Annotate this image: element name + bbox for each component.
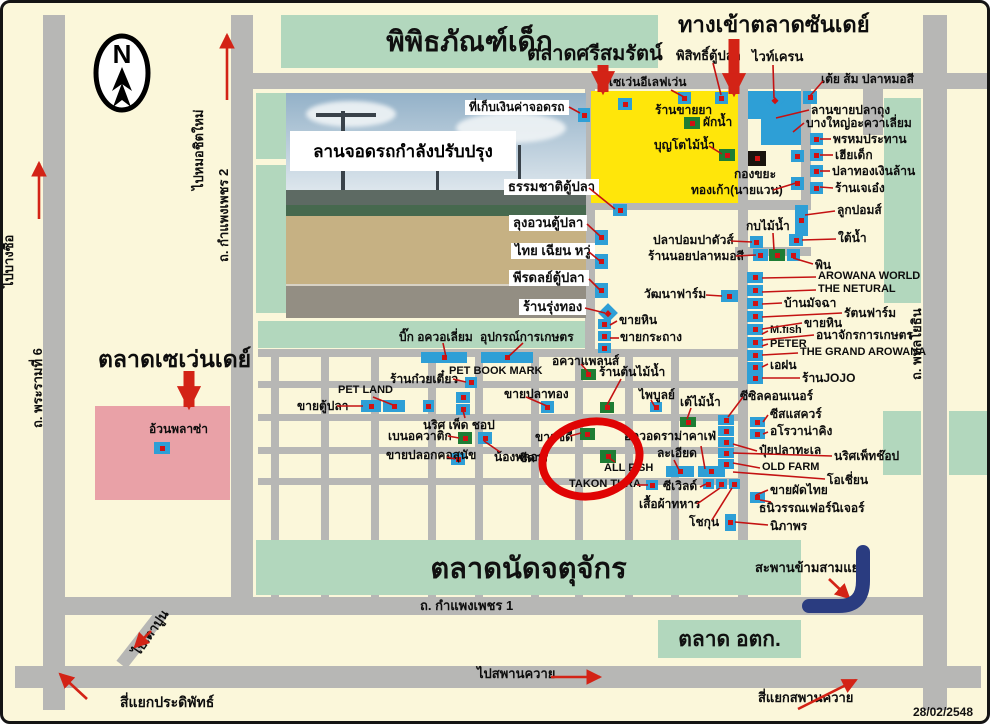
- shop-label: พิสิทธิ์ตู้ปลา: [676, 49, 741, 63]
- map-box: [747, 285, 763, 296]
- box-marker-dot: [719, 482, 724, 487]
- map-box: [748, 151, 766, 166]
- shop-label: ธนิวรรณเฟอร์นิเจอร์: [759, 502, 865, 515]
- road: [231, 15, 253, 615]
- shop-label: PET BOOK MARK: [449, 366, 543, 378]
- map-box: [810, 149, 823, 161]
- shop-label: ซีสแสควร์: [770, 408, 822, 421]
- box-marker-dot: [369, 404, 374, 409]
- shop-label: ทองเก้า(นายแวน): [691, 184, 783, 197]
- shop-label-boxed: ร้านรุ่งทอง: [519, 299, 586, 315]
- map-box: [789, 234, 803, 246]
- area-blue-block-bottom: [761, 117, 801, 145]
- map-box: [600, 402, 614, 413]
- map-box: [703, 479, 714, 489]
- shop-label: อ้วนพลาซ่า: [149, 423, 208, 436]
- shop-label: ALL FISH: [604, 463, 653, 475]
- box-marker-dot: [599, 235, 604, 240]
- box-marker-dot: [753, 275, 758, 280]
- area-otk-market: ตลาด อตก.: [658, 620, 801, 658]
- area-otk-market-label: ตลาด อตก.: [678, 623, 781, 656]
- area-chatuchak-market: ตลาดนัดจตุจักร: [256, 540, 801, 595]
- shop-label: เต้ไม้น้ำ: [680, 396, 721, 409]
- box-marker-dot: [686, 420, 691, 425]
- photo-caption: ลานจอดรถกำลังปรับปรุง: [290, 131, 516, 171]
- map-box: [718, 448, 734, 458]
- map-box: [595, 230, 608, 245]
- shop-label: ซีซิลคอนเนอร์: [740, 390, 813, 403]
- shop-label: OLD FARM: [762, 462, 819, 474]
- shop-label: ร้านนอยปลาหมอสี: [648, 250, 744, 263]
- map-box: [791, 150, 804, 162]
- shop-label: เฮียเด็ก: [835, 149, 873, 162]
- shop-label: โชกุน: [689, 516, 719, 529]
- map-box: [750, 417, 765, 427]
- map-box: [458, 432, 472, 444]
- box-marker-dot: [706, 482, 711, 487]
- shop-label: ปลาปอมปาดัวส์: [653, 234, 734, 247]
- shop-label: ขายตู้ปลา: [297, 400, 348, 413]
- map-box: [456, 392, 470, 403]
- shop-label: ร้านเจเอ๋ง: [835, 182, 885, 195]
- map-box: [795, 205, 808, 236]
- shop-label: เต้ย ส้ม ปลาหมอสี: [821, 73, 914, 86]
- box-marker-dot: [775, 253, 780, 258]
- map-box: [715, 92, 728, 104]
- box-marker-dot: [469, 380, 474, 385]
- shop-label: บิ๊ก อควอเลี่ยม: [399, 331, 473, 344]
- map-box: [716, 479, 727, 489]
- place-title: ทางเข้าตลาดซันเดย์: [678, 13, 870, 36]
- box-marker-dot: [753, 288, 758, 293]
- shop-label: สี่แยกประดิพัทธ์: [120, 695, 214, 710]
- map-box: [646, 480, 658, 490]
- shop-label: โอเชี่ยน: [827, 474, 868, 487]
- shop-label-boxed: พีรดลย์ตู้ปลา: [509, 270, 589, 286]
- map-box: [810, 133, 823, 145]
- shop-label: พรหมประทาน: [833, 133, 907, 146]
- box-marker-dot: [678, 469, 683, 474]
- box-marker-dot: [753, 353, 758, 358]
- box-marker-dot: [599, 259, 604, 264]
- shop-label: ถ. กำแพงเพชร 1: [420, 599, 513, 613]
- road-label: ถ. พหลโยธิน: [906, 308, 927, 380]
- box-marker-dot: [728, 520, 733, 525]
- map-box: [598, 319, 611, 329]
- box-marker-dot: [755, 156, 760, 161]
- shop-label: ไวท์เครน: [752, 50, 803, 64]
- map-box: [456, 404, 470, 415]
- box-marker-dot: [545, 405, 550, 410]
- map-box: [618, 98, 632, 110]
- shop-label: ขายซีดี: [535, 431, 573, 444]
- connector-line: [762, 277, 816, 278]
- map-box: [769, 249, 785, 261]
- map-box: [361, 400, 381, 412]
- map-box: [595, 254, 608, 269]
- box-marker-dot: [753, 365, 758, 370]
- shop-label: อุปกรณ์การเกษตร: [480, 331, 574, 344]
- map-box: [747, 324, 763, 335]
- shop-label: บางใหญ่อะควาเลี่ยม: [806, 117, 912, 130]
- box-marker-dot: [753, 314, 758, 319]
- shop-label-boxed: ธรรมชาติตู้ปลา: [504, 179, 599, 195]
- map-box: [421, 352, 467, 363]
- shop-label: เอฝน: [770, 359, 797, 372]
- map-box: [595, 283, 608, 298]
- box-marker-dot: [719, 96, 724, 101]
- box-marker-dot: [725, 153, 730, 158]
- map-box: [598, 343, 611, 353]
- connector-line: [610, 321, 617, 325]
- box-marker-dot: [791, 253, 796, 258]
- shop-label: ขายผัดไทย: [770, 484, 828, 497]
- shop-label: ขายกระถาง: [620, 331, 682, 344]
- shop-label: เสื้อผ้าทหาร: [639, 498, 700, 511]
- area-block-right-bottom-1: [883, 411, 921, 475]
- map-box: [810, 165, 823, 177]
- box-marker-dot: [160, 446, 165, 451]
- shop-label: รัตนฟาร์ม: [844, 307, 896, 320]
- shop-label-boxed: ไทย เฉียน หวู่: [511, 243, 595, 259]
- box-marker-dot: [461, 407, 466, 412]
- map-box: [753, 249, 768, 261]
- shop-label: ปุ๋ยปลาทะเล: [759, 444, 821, 457]
- map-box: [787, 249, 800, 261]
- map-box: [481, 352, 533, 363]
- map-box: [423, 400, 434, 412]
- box-marker-dot: [753, 301, 758, 306]
- map-box: [750, 429, 765, 439]
- shop-label: อควอดราม่าคาเฟ่: [624, 430, 716, 443]
- box-marker-dot: [426, 404, 431, 409]
- box-marker-dot: [755, 432, 760, 437]
- shop-label: AROWANA WORLD: [818, 271, 920, 283]
- box-marker-dot: [582, 113, 587, 118]
- map-box: [718, 415, 734, 425]
- connector-line: [706, 295, 722, 296]
- box-marker-dot: [605, 405, 610, 410]
- map-box: [721, 290, 738, 302]
- map-box: [747, 350, 763, 361]
- connector-line: [802, 239, 836, 240]
- map-box: [613, 204, 627, 216]
- shop-label-boxed: ลุงอวนตู้ปลา: [509, 215, 587, 231]
- shop-label: ขายปลาทอง: [504, 388, 569, 401]
- box-marker-dot: [654, 405, 659, 410]
- shop-label: ไพบูลย์: [639, 389, 675, 402]
- shop-label: อนาจักรการเกษตร: [816, 329, 913, 342]
- box-marker-dot: [586, 372, 591, 377]
- shop-label: ผักน้ำ: [703, 116, 732, 129]
- road-label: ไปหมอชิตใหม่: [188, 110, 209, 191]
- map-box: [578, 108, 590, 122]
- shop-label: TAKON TURA: [569, 479, 641, 491]
- box-marker-dot: [650, 483, 655, 488]
- map-box: [580, 428, 595, 440]
- box-marker-dot: [814, 169, 819, 174]
- map-box: [750, 236, 763, 248]
- shop-label: สี่แยกสพานควาย: [758, 691, 853, 705]
- compass: N: [93, 33, 151, 113]
- shop-label: PET LAND: [338, 385, 393, 397]
- map-box: [719, 149, 735, 161]
- map-box: [718, 459, 734, 469]
- place-title: ตลาดเซเว่นเดย์: [98, 347, 251, 371]
- shop-label: เซเว่นอีเลฟเว่น: [609, 76, 687, 89]
- shop-label: นริศเพ็ทช๊อป: [834, 450, 899, 463]
- shop-label: สะพานข้ามสามแยก: [755, 561, 867, 575]
- shop-label: ลูกปอมส์: [837, 204, 882, 217]
- box-marker-dot: [755, 420, 760, 425]
- map-box: [465, 377, 477, 388]
- map-box: [598, 331, 611, 341]
- map-box: [725, 514, 736, 531]
- area-strip-left-1: [256, 93, 286, 159]
- box-marker-dot: [732, 482, 737, 487]
- box-marker-dot: [814, 153, 819, 158]
- map-box: [747, 272, 763, 283]
- shop-label: กองขยะ: [734, 168, 776, 181]
- map-box: [747, 337, 763, 348]
- map-box: [747, 298, 763, 309]
- map-box: [666, 466, 694, 477]
- connector-line: [697, 488, 720, 504]
- shop-label: THE NETURAL: [818, 284, 896, 296]
- box-marker-dot: [724, 462, 729, 467]
- map-box: [810, 182, 823, 194]
- shop-label: ขายหิน: [619, 314, 657, 327]
- shop-label: เบนอควาติก: [388, 430, 452, 443]
- box-marker-dot: [724, 451, 729, 456]
- box-marker-dot: [814, 186, 819, 191]
- box-marker-dot: [604, 309, 611, 316]
- box-marker-dot: [483, 436, 488, 441]
- map-root: ลานจอดรถกำลังปรับปรุง N 28/02/2548 พิพิธ…: [3, 3, 987, 721]
- shop-label: ร้านต้นไม้น้ำ: [599, 366, 665, 379]
- box-marker-dot: [602, 322, 607, 327]
- box-marker-dot: [618, 208, 623, 213]
- box-marker-dot: [461, 395, 466, 400]
- box-marker-dot: [799, 218, 804, 223]
- shop-label: กบไม้น้ำ: [746, 220, 790, 233]
- box-marker-dot: [753, 327, 758, 332]
- box-marker-dot: [753, 340, 758, 345]
- map-box: [650, 402, 662, 412]
- shop-label: นิภาพร: [770, 520, 807, 533]
- map-box: [718, 437, 734, 447]
- shop-label: ร้านก๋วยเตี๋ยว: [390, 373, 458, 386]
- direction-arrow: [829, 579, 849, 598]
- box-marker-dot: [505, 355, 510, 360]
- box-marker-dot: [814, 137, 819, 142]
- box-marker-dot: [392, 404, 397, 409]
- map-frame: ลานจอดรถกำลังปรับปรุง N 28/02/2548 พิพิธ…: [0, 0, 990, 724]
- photo-crane-jib: [316, 113, 376, 117]
- box-marker-dot: [606, 454, 611, 459]
- date-stamp: 28/02/2548: [913, 705, 973, 719]
- shop-label: บ้านมัจฉา: [784, 297, 836, 310]
- area-block-right-bottom-2: [949, 411, 990, 475]
- map-box: [747, 311, 763, 322]
- box-marker-dot: [682, 96, 687, 101]
- box-marker-dot: [585, 432, 590, 437]
- box-marker-dot: [724, 440, 729, 445]
- box-marker-dot: [599, 288, 604, 293]
- box-marker-dot: [623, 102, 628, 107]
- box-marker-dot: [795, 181, 800, 186]
- shop-label: ขายปลอกคอสุนัข: [386, 449, 476, 462]
- map-box: [747, 373, 763, 384]
- road-label: ไปบางซื่อ: [0, 235, 19, 288]
- shop-label: ซีดาร์: [519, 452, 548, 465]
- map-box: [684, 117, 700, 129]
- box-marker-dot: [602, 334, 607, 339]
- box-marker-dot: [724, 418, 729, 423]
- box-marker-dot: [808, 95, 813, 100]
- shop-label-boxed: ที่เก็บเงินค่าจอดรถ: [465, 100, 569, 115]
- box-marker-dot: [690, 121, 695, 126]
- box-marker-dot: [463, 436, 468, 441]
- shop-label: ปลาทองเงินล้าน: [832, 165, 915, 178]
- shop-label: อโรวาน่าคิง: [770, 425, 832, 438]
- compass-letter: N: [93, 39, 151, 70]
- shop-label: บุญโตไม้น้ำ: [654, 139, 715, 152]
- box-marker-dot: [602, 346, 607, 351]
- road-label: ถ. กำแพงเพชร 2: [213, 169, 234, 262]
- shop-label: M.fish: [770, 325, 802, 337]
- area-chatuchak-market-label: ตลาดนัดจตุจักร: [430, 545, 626, 591]
- map-box: [729, 479, 740, 489]
- map-box: [581, 369, 596, 380]
- map-box: [383, 400, 405, 412]
- box-marker-dot: [771, 96, 778, 103]
- shop-label: ซีเวิลด์: [663, 480, 697, 493]
- connector-line: [805, 211, 835, 215]
- shop-label: วัฒนาฟาร์ม: [644, 288, 706, 301]
- map-box: [541, 401, 554, 413]
- map-box: [154, 442, 170, 454]
- shop-label: ไปสพานควาย: [477, 667, 555, 681]
- connector-line: [762, 290, 816, 292]
- shop-label: ลานขายปลาถุง: [811, 104, 890, 117]
- shop-label: ใต้น้ำ: [838, 232, 867, 245]
- connector-line: [762, 303, 782, 304]
- place-title: ตลาดศรีสมรัตน์: [527, 44, 663, 65]
- map-box: [747, 362, 763, 373]
- area-strip-left-2: [256, 165, 286, 313]
- box-marker-dot: [758, 253, 763, 258]
- box-marker-dot: [795, 154, 800, 159]
- map-box: [478, 432, 492, 444]
- connector-line: [762, 353, 798, 355]
- box-marker-dot: [709, 469, 714, 474]
- box-marker-dot: [753, 376, 758, 381]
- box-marker-dot: [442, 355, 447, 360]
- box-marker-dot: [754, 240, 759, 245]
- shop-label: ร้านJOJO: [802, 372, 855, 385]
- road-label: ถ. พระรามที่ 6: [27, 348, 48, 428]
- map-box: [791, 177, 804, 190]
- box-marker-dot: [727, 294, 732, 299]
- shop-label: ละเอียด: [657, 447, 697, 460]
- box-marker-dot: [724, 429, 729, 434]
- map-box: [680, 417, 696, 427]
- map-box: [718, 426, 734, 436]
- box-marker-dot: [755, 495, 760, 500]
- box-marker-dot: [794, 238, 799, 243]
